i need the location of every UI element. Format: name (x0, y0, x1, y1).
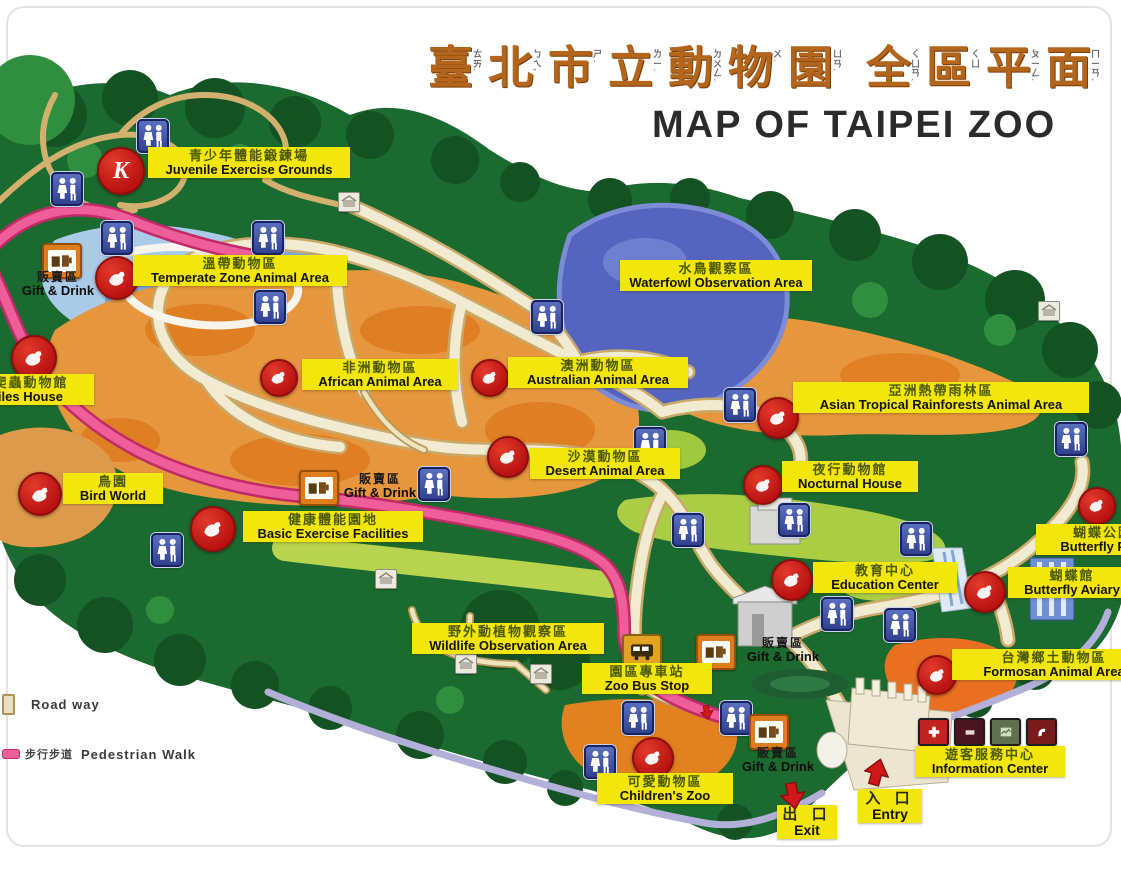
restroom-icon (622, 701, 654, 735)
exit-en: Exit (779, 823, 835, 838)
restroom-icon (672, 513, 704, 547)
label-en: Wildlife Observation Area (414, 639, 602, 653)
restroom-icon (101, 221, 133, 255)
exit-arrow (780, 782, 806, 815)
restroom-icon (252, 221, 284, 255)
label-butterfly-park: 蝴蝶公園Butterfly Park (1036, 524, 1121, 555)
label-zh: 蝴蝶館 (1010, 568, 1121, 583)
title-char: 園ㄩㄢˊ (788, 42, 848, 94)
title-char: 區ㄑㄩ (926, 42, 986, 94)
gift-drink-label: 販賣區Gift & Drink (330, 473, 430, 500)
restroom-icon (254, 290, 286, 324)
title-char: 面ㄇㄧㄢˋ (1046, 42, 1106, 94)
title-char-zhuyin: ㄑㄩㄢˊ (911, 50, 922, 88)
butterfly-aviary-icon (964, 571, 1006, 613)
label-en: Zoo Bus Stop (584, 679, 710, 693)
restroom-icon (531, 300, 563, 334)
label-zh: 教育中心 (815, 563, 955, 578)
label-en: Basic Exercise Facilities (245, 527, 421, 541)
legend-pedestrian-walk-zh: 步行步道 (25, 746, 73, 762)
entry-label: 入 口Entry (858, 789, 922, 823)
restroom-icon (1055, 422, 1087, 456)
label-temperate-zone-animal-area: 溫帶動物區Temperate Zone Animal Area (133, 255, 347, 286)
label-zh: 園區專車站 (584, 664, 710, 679)
title-char: 平ㄆㄧㄥˊ (986, 42, 1046, 94)
label-zh: 台灣鄉土動物區 (954, 650, 1121, 665)
gift-drink-icon-inner (702, 641, 730, 663)
title-char-zhuyin: ㄊㄞˊ (473, 50, 484, 79)
facility-icon (1038, 301, 1060, 321)
legend-road-way: Road way (2, 694, 100, 715)
label-en: Reptiles House (0, 390, 92, 404)
label-zh: 水鳥觀察區 (622, 261, 810, 276)
entry-en: Entry (860, 807, 920, 822)
gift-drink-label: 販賣區Gift & Drink (8, 271, 108, 298)
facility-icon (455, 654, 477, 674)
gift-drink-icon-inner (48, 250, 76, 272)
label-waterfowl-observation-area: 水鳥觀察區Waterfowl Observation Area (620, 260, 812, 291)
label-zh: 青少年體能鍛鍊場 (150, 148, 348, 163)
english-title: MAP OF TAIPEI ZOO (652, 104, 1056, 147)
label-australian-animal-area: 澳洲動物區Australian Animal Area (508, 357, 688, 388)
label-en: Juvenile Exercise Grounds (150, 163, 348, 177)
label-zh: 鳥園 (65, 474, 161, 489)
label-en: Butterfly Park (1038, 540, 1121, 554)
telephone-icon (1026, 718, 1057, 746)
label-zh: 蝴蝶公園 (1038, 525, 1121, 540)
title-char-zhuyin: ㄩㄢˊ (833, 50, 844, 79)
title-char-zhuyin: ㄅㄟˇ (533, 50, 544, 79)
chinese-title: 臺ㄊㄞˊ北ㄅㄟˇ市ㄕˋ立ㄌㄧˋ動ㄉㄨㄥˋ物ㄨˋ園ㄩㄢˊ全ㄑㄩㄢˊ區ㄑㄩ平ㄆㄧㄥˊ… (428, 42, 1106, 94)
label-zoo-bus-stop: 園區專車站Zoo Bus Stop (582, 663, 712, 694)
label-bird-world: 鳥園Bird World (63, 473, 163, 504)
label-en: Information Center (917, 762, 1063, 776)
label-reptiles-house: 兩棲爬蟲動物館Reptiles House (0, 374, 94, 405)
formosan-animal-icon (917, 655, 957, 695)
label-en: Waterfowl Observation Area (622, 276, 810, 290)
label-basic-exercise-facilities: 健康體能園地Basic Exercise Facilities (243, 511, 423, 542)
title-char-glyph: 園 (788, 42, 833, 94)
title-char-glyph: 市 (548, 42, 593, 94)
label-childrens-zoo: 可愛動物區Children's Zoo (597, 773, 733, 804)
restroom-icon (821, 597, 853, 631)
gift-drink-en: Gift & Drink (726, 760, 830, 774)
title-char-zhuyin: ㄉㄨㄥˋ (713, 50, 724, 88)
taipei-zoo-map-page: 青少年體能鍛鍊場Juvenile Exercise Grounds溫帶動物區Te… (0, 0, 1121, 889)
label-zh: 野外動植物觀察區 (414, 624, 602, 639)
nocturnal-house-icon (743, 465, 783, 505)
desert-animal-icon (487, 436, 529, 478)
legend-pedestrian-walk: 步行步道 Pedestrian Walk (2, 746, 196, 762)
label-zh: 可愛動物區 (599, 774, 731, 789)
label-en: Desert Animal Area (532, 464, 678, 478)
restroom-icon (151, 533, 183, 567)
lost-and-found-icon (954, 718, 985, 746)
butterfly-park-icon (1078, 487, 1116, 525)
title-char-zhuyin: ㄑㄩ (971, 50, 982, 69)
title-char-zhuyin: ㄨˋ (773, 50, 784, 69)
title-char-glyph: 動 (668, 42, 713, 94)
title-char: 北ㄅㄟˇ (488, 42, 548, 94)
gift-drink-label: 販賣區Gift & Drink (726, 747, 830, 774)
label-zh: 夜行動物館 (784, 462, 916, 477)
restroom-icon (900, 522, 932, 556)
title-char-zhuyin: ㄇㄧㄢˋ (1091, 50, 1102, 88)
label-wildlife-observation-area: 野外動植物觀察區Wildlife Observation Area (412, 623, 604, 654)
label-en: Temperate Zone Animal Area (135, 271, 345, 285)
title-char-glyph: 立 (608, 42, 653, 94)
label-en: Asian Tropical Rainforests Animal Area (795, 398, 1087, 412)
label-zh: 健康體能園地 (245, 512, 421, 527)
title-char-zhuyin: ㄌㄧˋ (653, 50, 664, 79)
title-char: 臺ㄊㄞˊ (428, 42, 488, 94)
pedestrian-walk-swatch-icon (2, 749, 20, 759)
label-en: Formosan Animal Area (954, 665, 1121, 679)
facility-icon (375, 569, 397, 589)
juvenile-exercise-icon: K (97, 147, 145, 195)
map-board-icon (990, 718, 1021, 746)
title-char-glyph: 全 (866, 42, 911, 94)
gift-drink-en: Gift & Drink (733, 650, 833, 664)
title-char-zhuyin: ㄆㄧㄥˊ (1031, 50, 1042, 88)
african-animal-icon (260, 359, 298, 397)
facility-icon (530, 664, 552, 684)
label-desert-animal-area: 沙漠動物區Desert Animal Area (530, 448, 680, 479)
label-juvenile-exercise-grounds: 青少年體能鍛鍊場Juvenile Exercise Grounds (148, 147, 350, 178)
title-char: 動ㄉㄨㄥˋ (668, 42, 728, 94)
education-center-icon (771, 559, 813, 601)
label-zh: 兩棲爬蟲動物館 (0, 375, 92, 390)
title-char-glyph: 北 (488, 42, 533, 94)
title-char-glyph: 臺 (428, 42, 473, 94)
restroom-icon (884, 608, 916, 642)
juvenile-exercise-icon-glyph: K (113, 158, 129, 185)
label-education-center: 教育中心Education Center (813, 562, 957, 593)
title-char-glyph: 平 (986, 42, 1031, 94)
legend-road-way-label: Road way (31, 697, 100, 712)
label-information-center: 遊客服務中心Information Center (915, 746, 1065, 777)
label-zh: 亞洲熱帶雨林區 (795, 383, 1087, 398)
label-en: Butterfly Aviary (1010, 583, 1121, 597)
title-char: 市ㄕˋ (548, 42, 608, 94)
label-nocturnal-house: 夜行動物館Nocturnal House (782, 461, 918, 492)
label-asian-tropical-rainforests-animal-area: 亞洲熱帶雨林區Asian Tropical Rainforests Animal… (793, 382, 1089, 413)
label-en: Australian Animal Area (510, 373, 686, 387)
title-char: 物ㄨˋ (728, 42, 788, 94)
australian-animal-icon (471, 359, 509, 397)
bird-world-icon (18, 472, 62, 516)
entry-zh: 入 口 (860, 790, 920, 807)
path-arrow (700, 705, 714, 725)
restroom-icon (51, 172, 83, 206)
title-char-glyph: 物 (728, 42, 773, 94)
gift-drink-icon (749, 714, 789, 750)
title-char-glyph: 面 (1046, 42, 1091, 94)
facility-icon (338, 192, 360, 212)
legend-pedestrian-walk-label: Pedestrian Walk (81, 747, 196, 762)
basic-exercise-icon (190, 506, 236, 552)
entry-arrow (864, 758, 890, 791)
label-butterfly-aviary: 蝴蝶館Butterfly Aviary (1008, 567, 1121, 598)
gift-drink-icon-inner (305, 477, 333, 499)
label-zh: 非洲動物區 (304, 360, 456, 375)
title-char: 全ㄑㄩㄢˊ (866, 42, 926, 94)
label-zh: 遊客服務中心 (917, 747, 1063, 762)
first-aid-icon (918, 718, 949, 746)
label-african-animal-area: 非洲動物區African Animal Area (302, 359, 458, 390)
title-char-glyph: 區 (926, 42, 971, 94)
label-formosan-animal-area: 台灣鄉土動物區Formosan Animal Area (952, 649, 1121, 680)
title-char: 立ㄌㄧˋ (608, 42, 668, 94)
road-way-swatch-icon (2, 694, 15, 715)
title-char-zhuyin: ㄕˋ (593, 50, 604, 69)
restroom-icon (720, 701, 752, 735)
label-en: Bird World (65, 489, 161, 503)
gift-drink-en: Gift & Drink (330, 486, 430, 500)
label-en: African Animal Area (304, 375, 456, 389)
label-en: Education Center (815, 578, 955, 592)
label-zh: 澳洲動物區 (510, 358, 686, 373)
restroom-icon (778, 503, 810, 537)
label-en: Nocturnal House (784, 477, 916, 491)
label-zh: 沙漠動物區 (532, 449, 678, 464)
restroom-icon (724, 388, 756, 422)
gift-drink-label: 販賣區Gift & Drink (733, 637, 833, 664)
label-zh: 溫帶動物區 (135, 256, 345, 271)
gift-drink-en: Gift & Drink (8, 284, 108, 298)
label-en: Children's Zoo (599, 789, 731, 803)
gift-drink-icon-inner (755, 721, 783, 743)
